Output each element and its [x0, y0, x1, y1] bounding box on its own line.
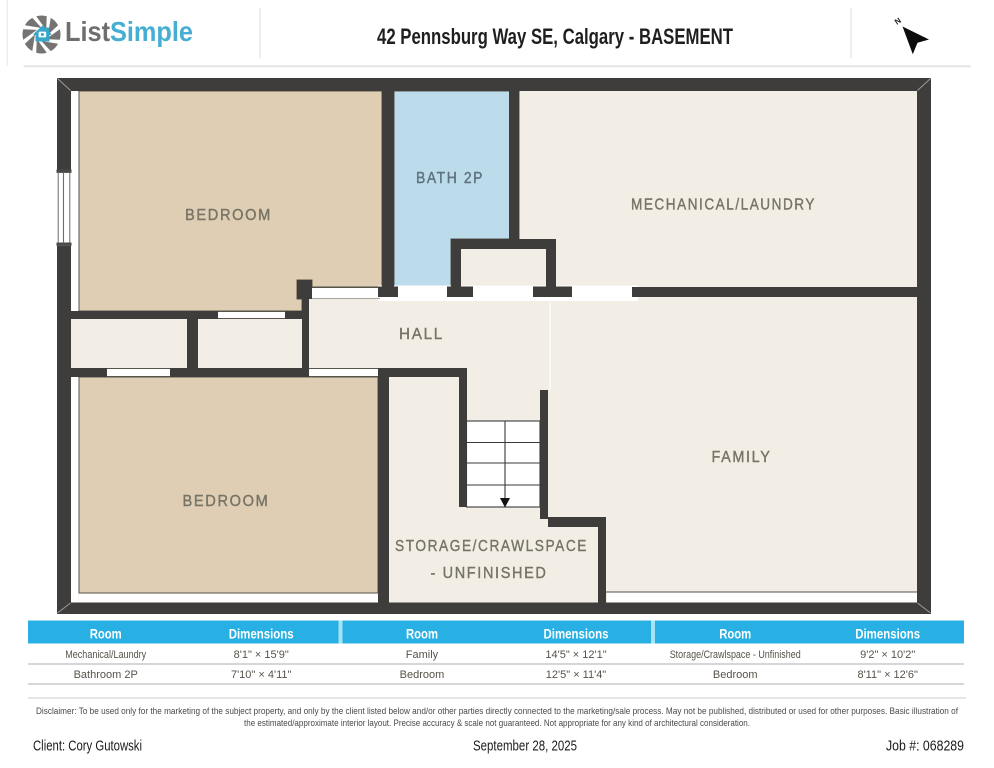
svg-text:BEDROOM: BEDROOM [185, 207, 272, 224]
svg-text:BATH 2P: BATH 2P [416, 170, 484, 187]
svg-text:8'11" × 12'6": 8'11" × 12'6" [857, 669, 918, 681]
svg-text:12'5" × 11'4": 12'5" × 11'4" [546, 669, 607, 681]
svg-text:BEDROOM: BEDROOM [183, 493, 270, 510]
svg-text:7'10" × 4'11": 7'10" × 4'11" [231, 669, 292, 681]
svg-text:8'1" × 15'9": 8'1" × 15'9" [234, 649, 289, 661]
svg-text:Family: Family [406, 649, 439, 661]
svg-text:STORAGE/CRAWLSPACE: STORAGE/CRAWLSPACE [395, 538, 588, 555]
svg-text:- UNFINISHED: - UNFINISHED [431, 565, 548, 582]
svg-text:Dimensions: Dimensions [544, 626, 609, 642]
svg-text:ListSimple: ListSimple [65, 16, 193, 47]
svg-text:Room: Room [719, 626, 751, 642]
svg-text:HALL: HALL [399, 326, 444, 343]
svg-text:Disclaimer: To be used only fo: Disclaimer: To be used only for the mark… [36, 706, 959, 716]
svg-text:FAMILY: FAMILY [712, 449, 772, 466]
svg-text:Room: Room [90, 626, 122, 642]
svg-text:9'2" × 10'2": 9'2" × 10'2" [860, 649, 915, 661]
svg-text:Bedroom: Bedroom [713, 669, 758, 681]
svg-text:Mechanical/Laundry: Mechanical/Laundry [65, 649, 146, 661]
svg-text:14'5" × 12'1": 14'5" × 12'1" [545, 649, 606, 661]
svg-text:the estimated/approximate inte: the estimated/approximate interior layou… [244, 718, 750, 728]
svg-text:Dimensions: Dimensions [229, 626, 294, 642]
svg-text:Storage/Crawlspace - Unfinishe: Storage/Crawlspace - Unfinished [670, 649, 801, 661]
svg-text:Dimensions: Dimensions [855, 626, 920, 642]
svg-text:September 28, 2025: September 28, 2025 [473, 739, 577, 755]
svg-text:Bedroom: Bedroom [400, 669, 445, 681]
svg-text:42 Pennsburg Way SE, Calgary -: 42 Pennsburg Way SE, Calgary - BASEMENT [377, 24, 733, 49]
svg-text:Client: Cory Gutowski: Client: Cory Gutowski [33, 739, 142, 755]
svg-text:Bathroom 2P: Bathroom 2P [74, 669, 138, 681]
svg-text:MECHANICAL/LAUNDRY: MECHANICAL/LAUNDRY [631, 197, 816, 214]
svg-text:Room: Room [406, 626, 438, 642]
svg-text:Job #: 068289: Job #: 068289 [886, 739, 964, 755]
